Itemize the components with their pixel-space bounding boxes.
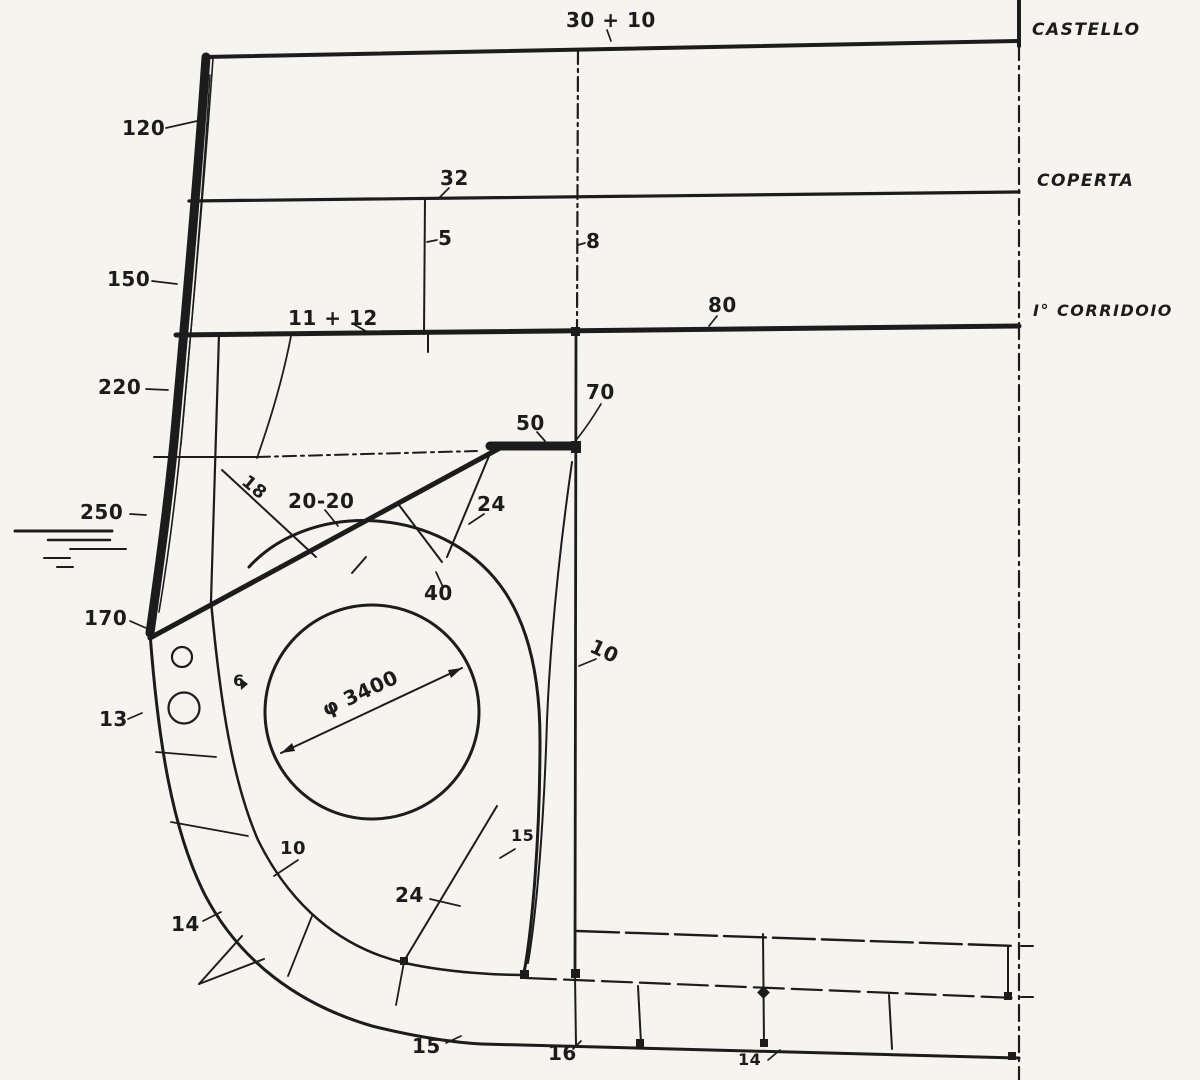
- construction-line-dashed: [257, 451, 477, 457]
- lightening-hole-small: [172, 647, 192, 667]
- wedge-mark: [199, 959, 264, 984]
- dim-label-10-bilge: 10: [280, 838, 306, 859]
- inner-side-line: [211, 334, 219, 601]
- dim-label-14-bottom: 14: [738, 1050, 761, 1069]
- dim-label-30-10: 30 + 10: [566, 8, 656, 32]
- dim-label-70: 70: [586, 380, 615, 404]
- dim-label-15-bottom: 15: [412, 1034, 441, 1058]
- dim-label-250: 250: [80, 500, 123, 524]
- tunnel-bulkhead-line: [575, 332, 576, 973]
- coperta-deck-line: [189, 192, 1019, 201]
- double-bottom-grid: [526, 931, 1016, 1049]
- grid-seam: [638, 986, 641, 1043]
- dim-label-6: 6: [233, 671, 245, 690]
- grid-seam: [889, 995, 892, 1049]
- frame-line-dashed: [577, 50, 578, 332]
- lightening-hole-large: [169, 693, 200, 724]
- dim-label-14-side: 14: [171, 912, 200, 936]
- dim-label-170: 170: [84, 606, 127, 630]
- middle-seam-line: [526, 978, 1016, 998]
- centerline: [1019, 0, 1033, 1080]
- inner-bottom-line: [577, 931, 1016, 946]
- pillar-line: [424, 198, 425, 334]
- strut-18: [222, 470, 316, 557]
- dim-label-150: 150: [107, 267, 150, 291]
- dim-label-15-upper: 15: [511, 826, 534, 845]
- side-shell: [150, 57, 291, 633]
- inner-band-curve: [211, 601, 524, 975]
- dim-label-24-upper: 24: [477, 492, 506, 516]
- plate-seam: [396, 962, 404, 1005]
- deck-lines: [176, 41, 1019, 335]
- casing-seam-tick: [352, 557, 366, 573]
- dim-label-20-20: 20-20: [288, 489, 354, 513]
- dim-label-11-12: 11 + 12: [288, 306, 378, 330]
- deck-label-castello: CASTELLO: [1032, 20, 1141, 40]
- dim-label-24-lower: 24: [395, 883, 424, 907]
- plate-seam: [288, 916, 312, 976]
- dim-label-40: 40: [424, 581, 453, 605]
- arrowhead: [448, 668, 462, 678]
- dim-label-5: 5: [438, 226, 452, 250]
- arrowhead: [281, 743, 295, 753]
- structural-section-drawing: 30 + 10 CASTELLO 120 32 COPERTA 5 8 150 …: [0, 0, 1200, 1080]
- frame-curve: [257, 336, 291, 458]
- bilge-band: [150, 601, 1019, 1058]
- dim-label-220: 220: [98, 375, 141, 399]
- dim-label-80: 80: [708, 293, 737, 317]
- dim-label-50: 50: [516, 411, 545, 435]
- dim-label-13: 13: [99, 707, 128, 731]
- dim-label-120: 120: [122, 116, 165, 140]
- dim-label-32: 32: [440, 166, 469, 190]
- deck-label-coperta: COPERTA: [1037, 171, 1134, 191]
- dim-label-8: 8: [586, 229, 600, 253]
- castello-deck-line: [204, 41, 1019, 57]
- sloped-margin-plate: [150, 448, 500, 638]
- deck-label-corridoio: I° CORRIDOIO: [1033, 301, 1173, 320]
- waterline-symbol: [15, 531, 126, 567]
- dim-label-16: 16: [548, 1041, 577, 1065]
